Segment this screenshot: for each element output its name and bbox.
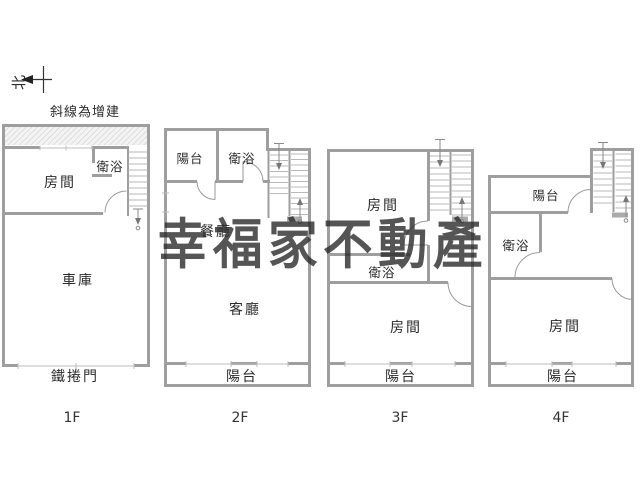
stair-down-arrow-head-icon bbox=[600, 162, 606, 169]
room-label-bath: 衛浴 bbox=[368, 265, 395, 280]
stair-arrow-origin-icon bbox=[624, 219, 628, 223]
stair-arrow-origin-icon bbox=[136, 226, 140, 230]
floor-1f bbox=[2, 124, 150, 369]
floorplan-drawing: 北 斜線為增建 bbox=[0, 0, 640, 480]
room-label-room-top: 房間 bbox=[367, 198, 399, 214]
floor-1f-openings bbox=[18, 146, 134, 370]
floor-1f-stairs bbox=[128, 146, 148, 230]
floor-name-3f: 3F bbox=[392, 410, 409, 426]
floor-1f-labels: 衛浴 房間 車庫 鐵捲門 1F bbox=[44, 159, 124, 426]
stair-up-arrow-head-icon bbox=[459, 197, 465, 204]
room-label-roller-door: 鐵捲門 bbox=[51, 368, 99, 385]
floor-4f-walls bbox=[488, 148, 634, 387]
room-label-balcony-top: 陽台 bbox=[176, 151, 203, 166]
room-label-bath: 衛浴 bbox=[502, 238, 529, 253]
floor-name-4f: 4F bbox=[553, 410, 570, 426]
room-label-living: 客廳 bbox=[229, 301, 261, 318]
room-label-garage: 車庫 bbox=[62, 272, 94, 289]
legend-note: 斜線為增建 bbox=[50, 104, 120, 120]
north-label: 北 bbox=[10, 75, 28, 90]
floor-4f-openings bbox=[506, 361, 616, 367]
watermark: 幸福家不動產 bbox=[158, 213, 488, 276]
floor-1f-doors bbox=[105, 191, 127, 213]
room-label-balcony-bottom: 陽台 bbox=[226, 369, 258, 385]
room-label-bath: 衛浴 bbox=[96, 159, 123, 174]
floor-4f-doors bbox=[515, 190, 633, 300]
room-label-balcony-bottom: 陽台 bbox=[547, 369, 579, 385]
floor-name-2f: 2F bbox=[232, 410, 249, 426]
floor-4f bbox=[488, 143, 634, 388]
stair-down-arrow bbox=[274, 144, 284, 166]
addition-hatch-area bbox=[5, 127, 147, 145]
floor-name-1f: 1F bbox=[64, 410, 81, 426]
compass: 北 bbox=[10, 66, 52, 93]
room-label-room-bottom: 房間 bbox=[390, 320, 422, 336]
floor-4f-stairs bbox=[594, 143, 632, 223]
room-label-dining: 餐廳 bbox=[200, 223, 232, 240]
floor-2f-stairs bbox=[269, 144, 309, 224]
floorplan-page: 北 斜線為增建 bbox=[0, 0, 640, 480]
stair-arrow-head-icon bbox=[135, 218, 141, 225]
room-label-balcony-bottom: 陽台 bbox=[385, 369, 417, 385]
stair-down-arrow-head-icon bbox=[437, 160, 443, 167]
room-label-room: 房間 bbox=[549, 319, 581, 335]
floor-3f-openings bbox=[345, 361, 455, 367]
stair-treads bbox=[129, 152, 148, 206]
stair-up-arrow-head-icon bbox=[297, 198, 303, 205]
room-label-balcony-top: 陽台 bbox=[532, 188, 559, 203]
room-label-room: 房間 bbox=[44, 175, 76, 191]
room-label-bath: 衛浴 bbox=[228, 151, 255, 166]
